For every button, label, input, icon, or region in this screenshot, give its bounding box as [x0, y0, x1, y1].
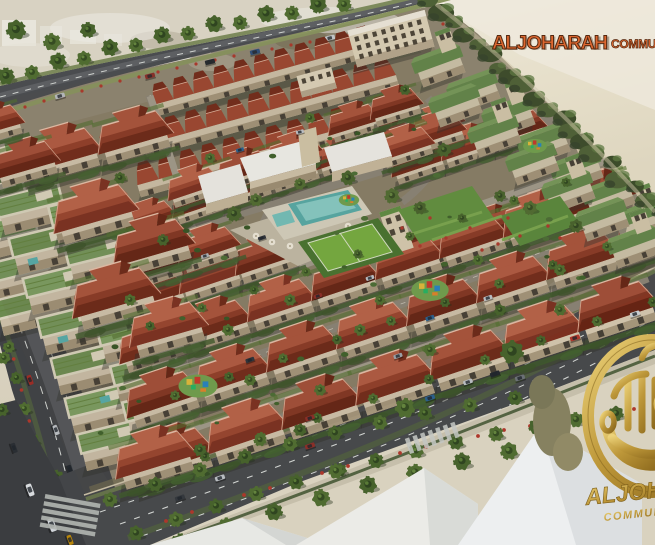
svg-text:COMMUNITY: COMMUNITY	[611, 37, 655, 51]
svg-text:ALJOHARAH: ALJOHARAH	[492, 32, 607, 54]
